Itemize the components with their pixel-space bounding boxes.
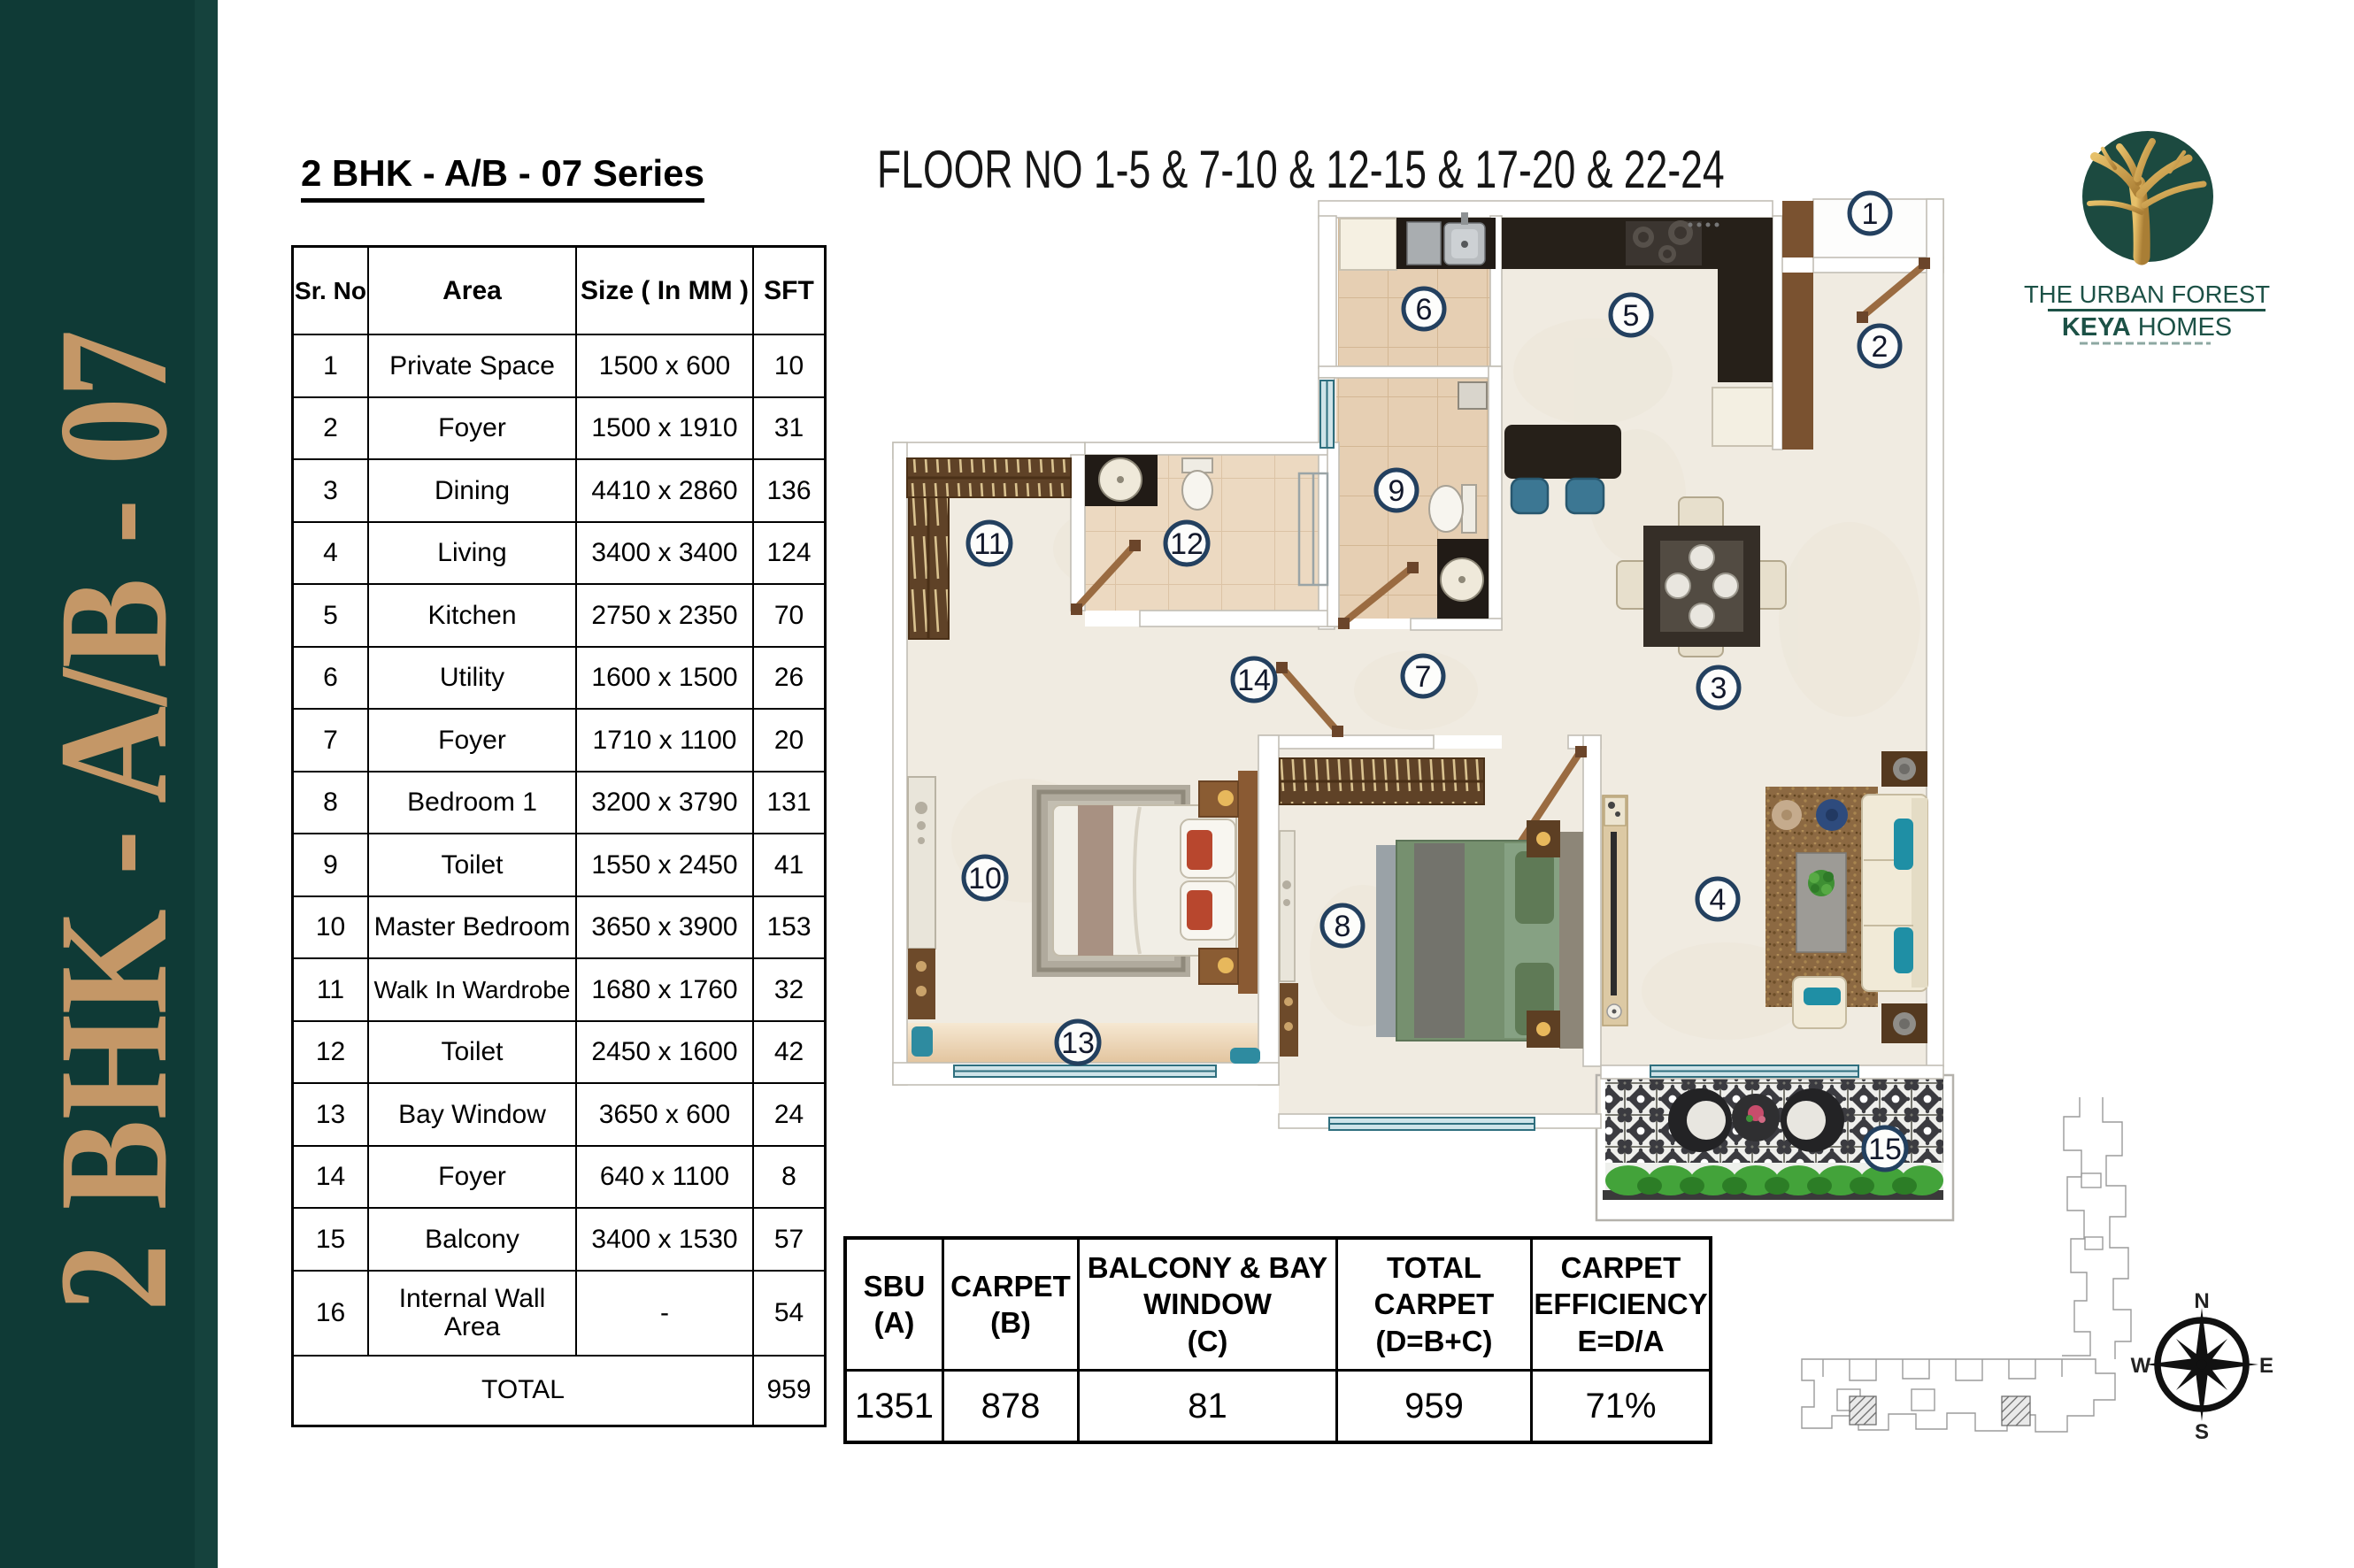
svg-text:W: W: [2131, 1354, 2151, 1378]
svg-text:E: E: [2259, 1354, 2273, 1378]
svg-text:KEYA HOMES: KEYA HOMES: [2062, 313, 2232, 342]
svg-text:THE URBAN FOREST: THE URBAN FOREST: [2024, 281, 2270, 308]
svg-text:8: 8: [1335, 910, 1351, 943]
svg-text:N: N: [2194, 1289, 2209, 1313]
svg-text:14: 14: [1237, 664, 1271, 697]
svg-text:4: 4: [1710, 883, 1727, 917]
svg-text:3: 3: [1711, 672, 1727, 705]
svg-text:1: 1: [1862, 197, 1879, 231]
svg-text:12: 12: [1170, 527, 1204, 561]
svg-text:7: 7: [1415, 660, 1432, 694]
svg-text:2: 2: [1872, 330, 1889, 364]
svg-text:10: 10: [968, 862, 1002, 895]
svg-text:S: S: [2195, 1420, 2209, 1444]
svg-text:5: 5: [1623, 299, 1640, 333]
svg-text:11: 11: [973, 527, 1004, 561]
svg-text:13: 13: [1061, 1026, 1095, 1060]
svg-text:9: 9: [1389, 474, 1405, 508]
svg-text:6: 6: [1416, 293, 1433, 327]
